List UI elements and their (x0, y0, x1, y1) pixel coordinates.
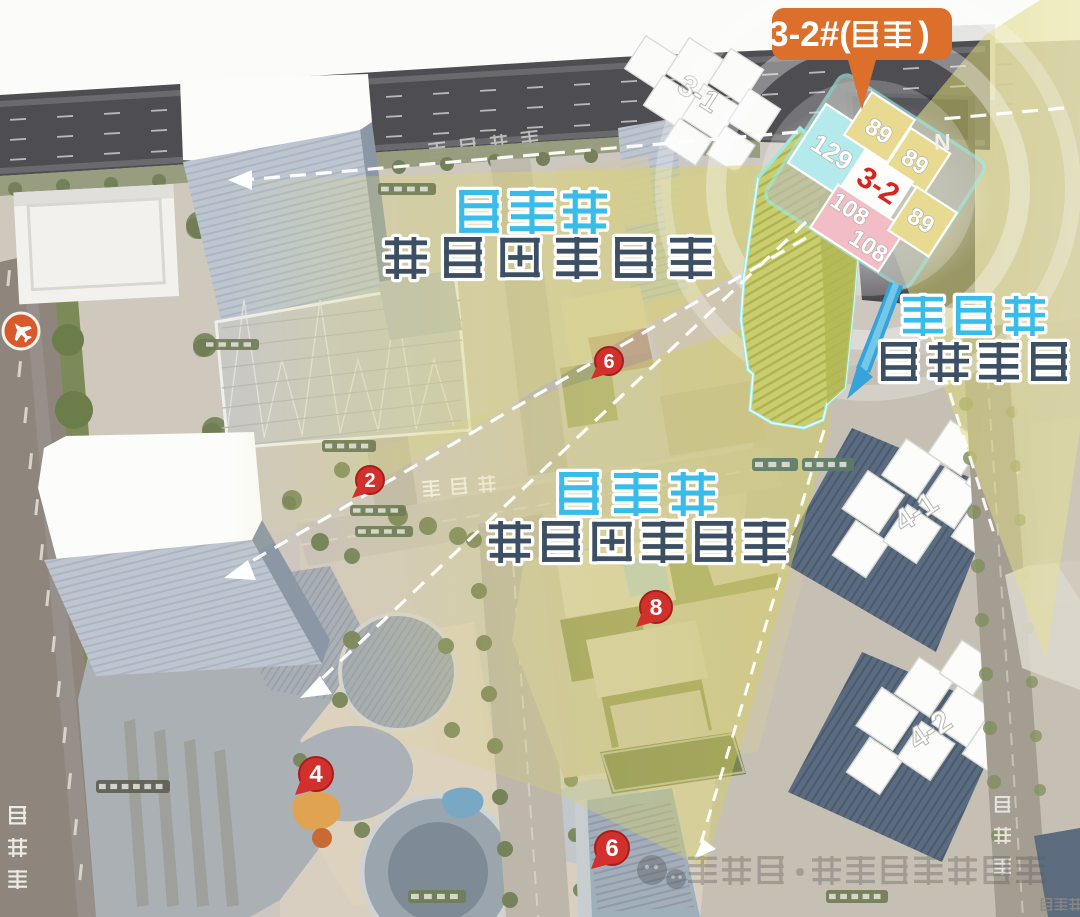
svg-text:2: 2 (364, 470, 375, 492)
svg-text:8: 8 (650, 594, 663, 620)
svg-text:4: 4 (309, 761, 323, 788)
svg-text:): ) (918, 15, 930, 54)
svg-text:6: 6 (603, 351, 614, 373)
svg-text:3-2#(: 3-2#( (769, 15, 851, 54)
svg-text:N: N (934, 129, 951, 155)
svg-text:6: 6 (605, 835, 618, 862)
